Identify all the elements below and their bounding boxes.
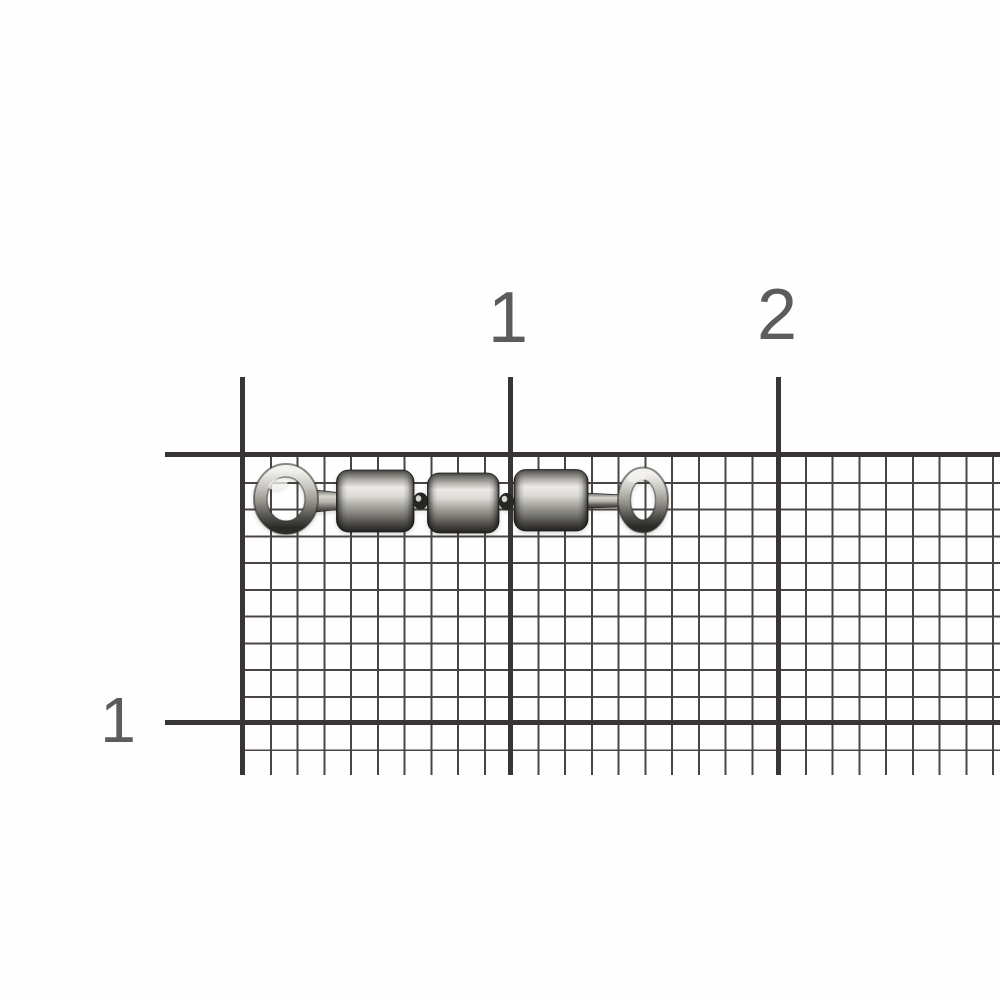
- grid-major-vertical-line-1cm: [508, 377, 513, 775]
- swivel-pin-1: [413, 493, 428, 510]
- swivel-right-ring: [618, 468, 668, 533]
- swivel-barrel-3: [514, 470, 588, 532]
- ruler-label-top-2: 2: [747, 279, 807, 351]
- swivel-left-ring: [254, 464, 318, 534]
- grid-major-vertical-line-2cm: [776, 377, 781, 775]
- grid-major-horizontal-line-1cm: [165, 720, 1000, 725]
- swivel-pin-2: [499, 493, 514, 510]
- grid-major-vertical-line-0: [240, 377, 245, 775]
- barrel-swivel-photo: [243, 453, 673, 541]
- photo-canvas: 1 2 1: [0, 0, 1000, 1000]
- swivel-barrel-2: [428, 473, 500, 533]
- ruler-label-top-1: 1: [478, 282, 538, 354]
- swivel-barrel-1: [337, 470, 415, 532]
- ruler-label-left-1: 1: [88, 688, 148, 752]
